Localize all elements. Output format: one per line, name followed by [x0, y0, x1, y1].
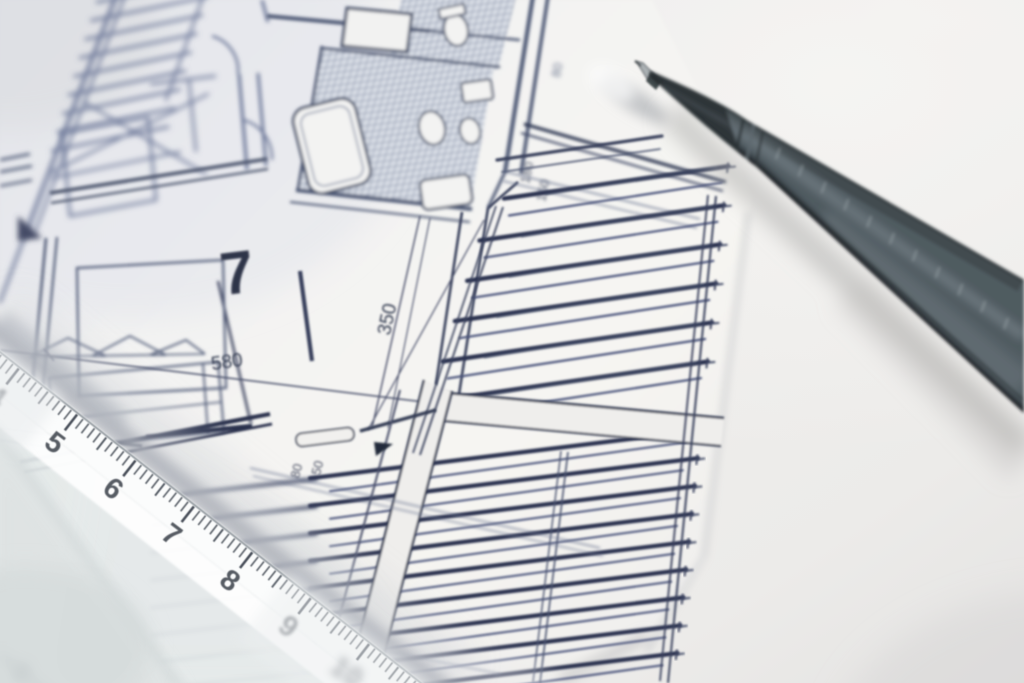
- svg-text:80: 80: [548, 62, 565, 79]
- svg-text:580: 580: [210, 350, 244, 375]
